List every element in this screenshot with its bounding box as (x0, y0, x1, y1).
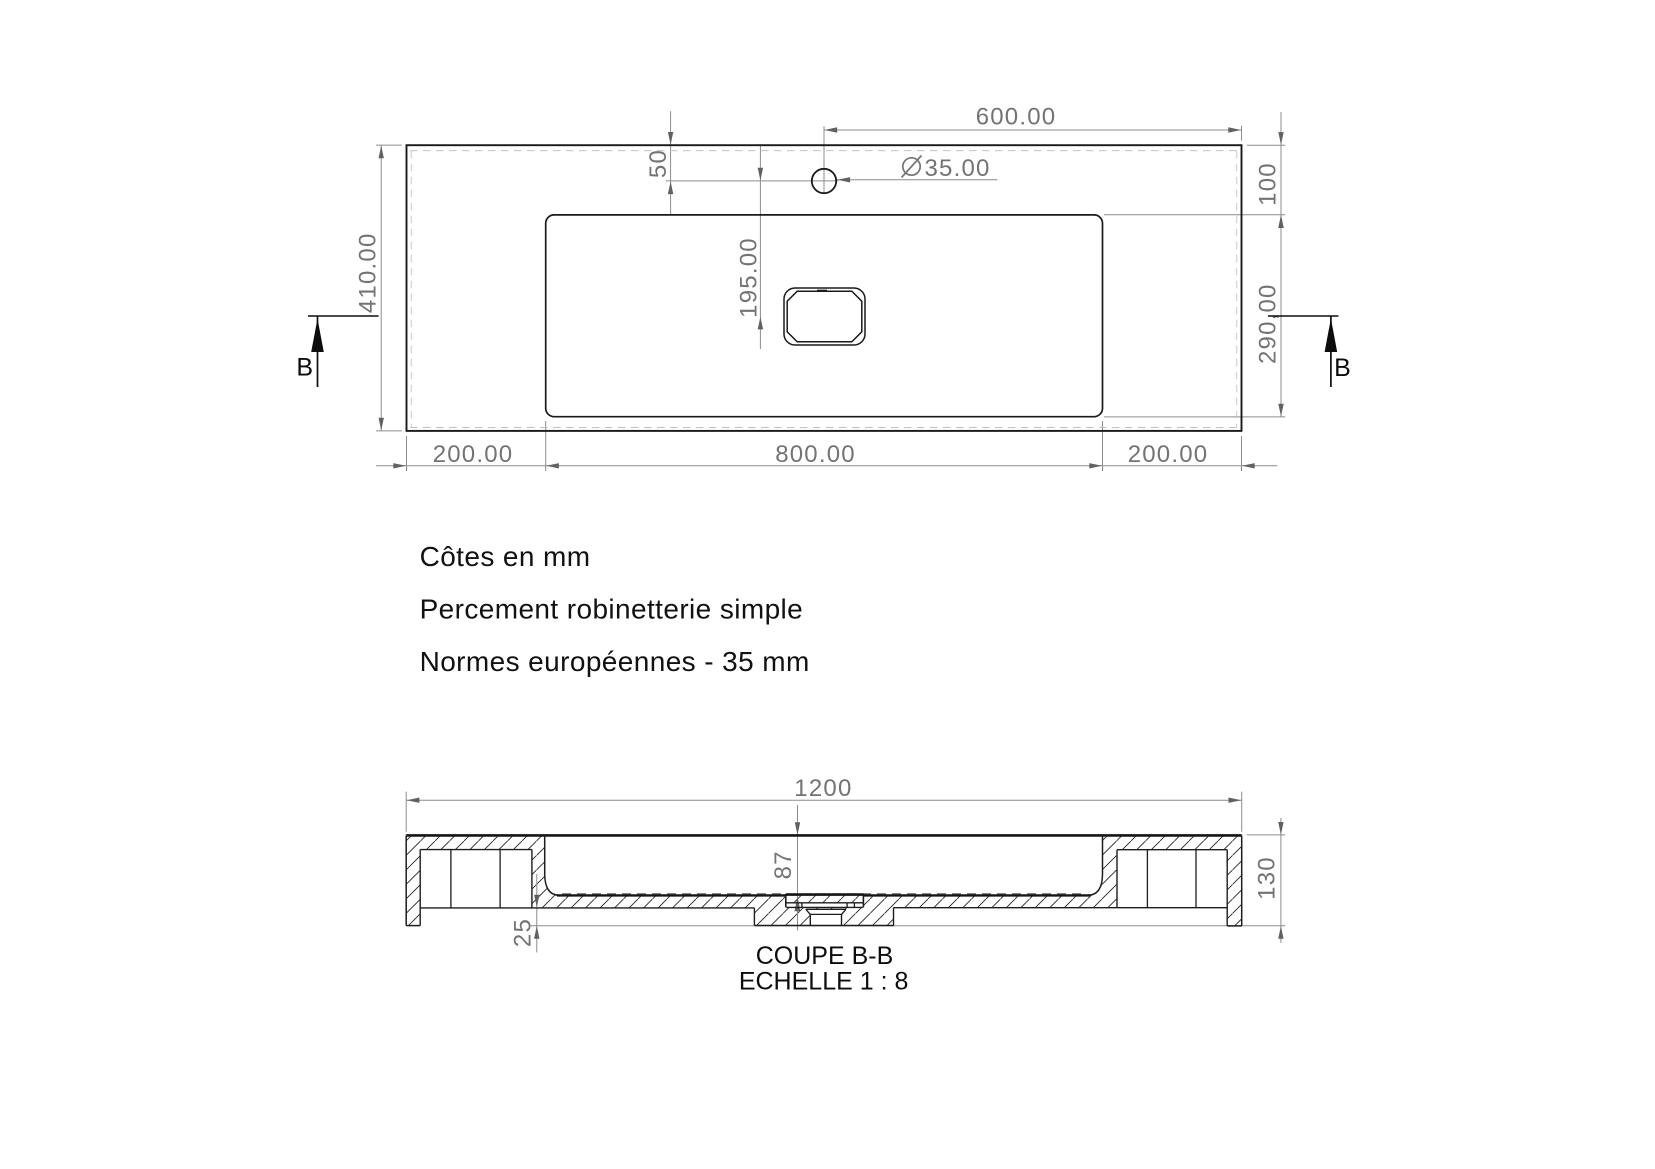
svg-text:195.00: 195.00 (735, 237, 762, 318)
svg-text:Côtes en mm: Côtes en mm (420, 541, 591, 572)
svg-text:Percement robinetterie simple: Percement robinetterie simple (420, 594, 804, 625)
svg-text:130: 130 (1254, 856, 1281, 900)
svg-text:87: 87 (770, 850, 797, 879)
svg-text:200.00: 200.00 (1128, 441, 1209, 468)
svg-text:Normes européennes - 35 mm: Normes européennes - 35 mm (420, 646, 810, 677)
svg-text:50: 50 (645, 149, 672, 178)
svg-text:290,00: 290,00 (1254, 283, 1281, 364)
svg-text:600.00: 600.00 (976, 104, 1057, 131)
svg-text:1200: 1200 (794, 775, 852, 802)
svg-text:410.00: 410.00 (355, 232, 382, 313)
svg-text:B: B (296, 354, 313, 382)
svg-text:35.00: 35.00 (925, 155, 991, 182)
svg-text:100: 100 (1254, 162, 1281, 206)
svg-text:ECHELLE 1 : 8: ECHELLE 1 : 8 (739, 968, 909, 996)
svg-text:25: 25 (510, 918, 537, 947)
svg-text:B: B (1334, 354, 1351, 382)
svg-text:200.00: 200.00 (433, 441, 514, 468)
svg-text:COUPE B-B: COUPE B-B (756, 942, 894, 970)
svg-text:800.00: 800.00 (775, 441, 856, 468)
